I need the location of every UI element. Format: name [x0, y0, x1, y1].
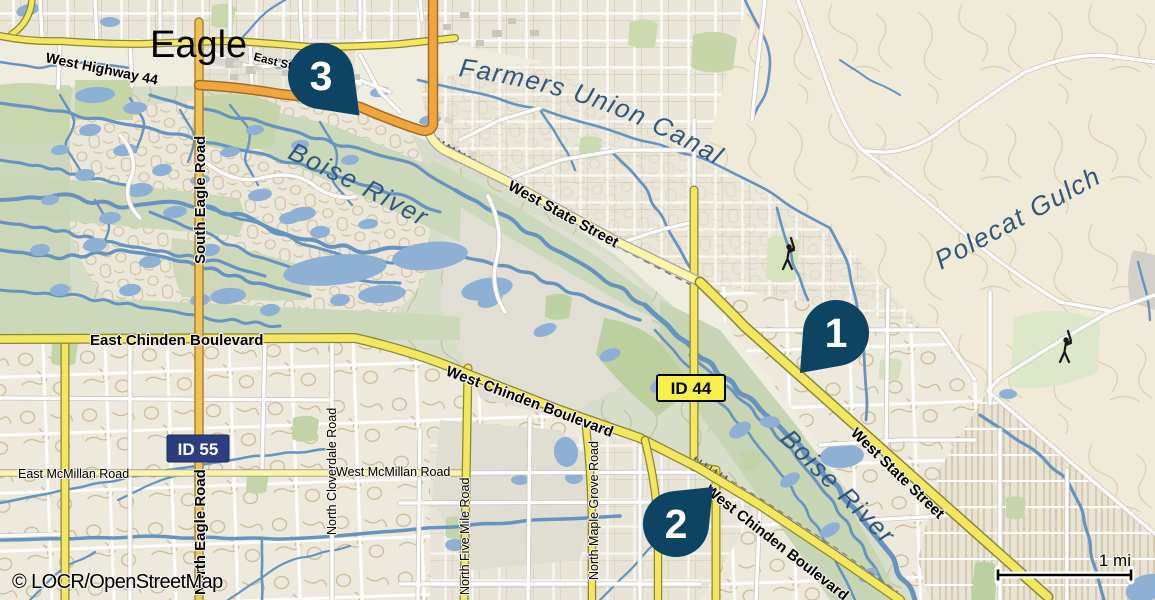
svg-text:North Maple Grove Road: North Maple Grove Road — [587, 441, 601, 580]
svg-text:East McMillan Road: East McMillan Road — [18, 467, 129, 481]
svg-text:1: 1 — [825, 310, 848, 356]
svg-text:ID 44: ID 44 — [671, 379, 712, 398]
svg-text:ID 55: ID 55 — [178, 440, 219, 459]
svg-text:West McMillan Road: West McMillan Road — [336, 465, 450, 479]
svg-text:East Chinden Boulevard: East Chinden Boulevard — [90, 332, 263, 349]
svg-text:South Eagle Road: South Eagle Road — [192, 136, 209, 264]
svg-text:Eagle: Eagle — [150, 24, 247, 66]
svg-text:1 mi: 1 mi — [1099, 551, 1131, 570]
svg-text:North Five Mile Road: North Five Mile Road — [458, 478, 472, 595]
svg-text:2: 2 — [665, 501, 688, 547]
svg-text:3: 3 — [310, 53, 333, 99]
svg-text:© LOCR/OpenStreetMap: © LOCR/OpenStreetMap — [12, 571, 223, 593]
